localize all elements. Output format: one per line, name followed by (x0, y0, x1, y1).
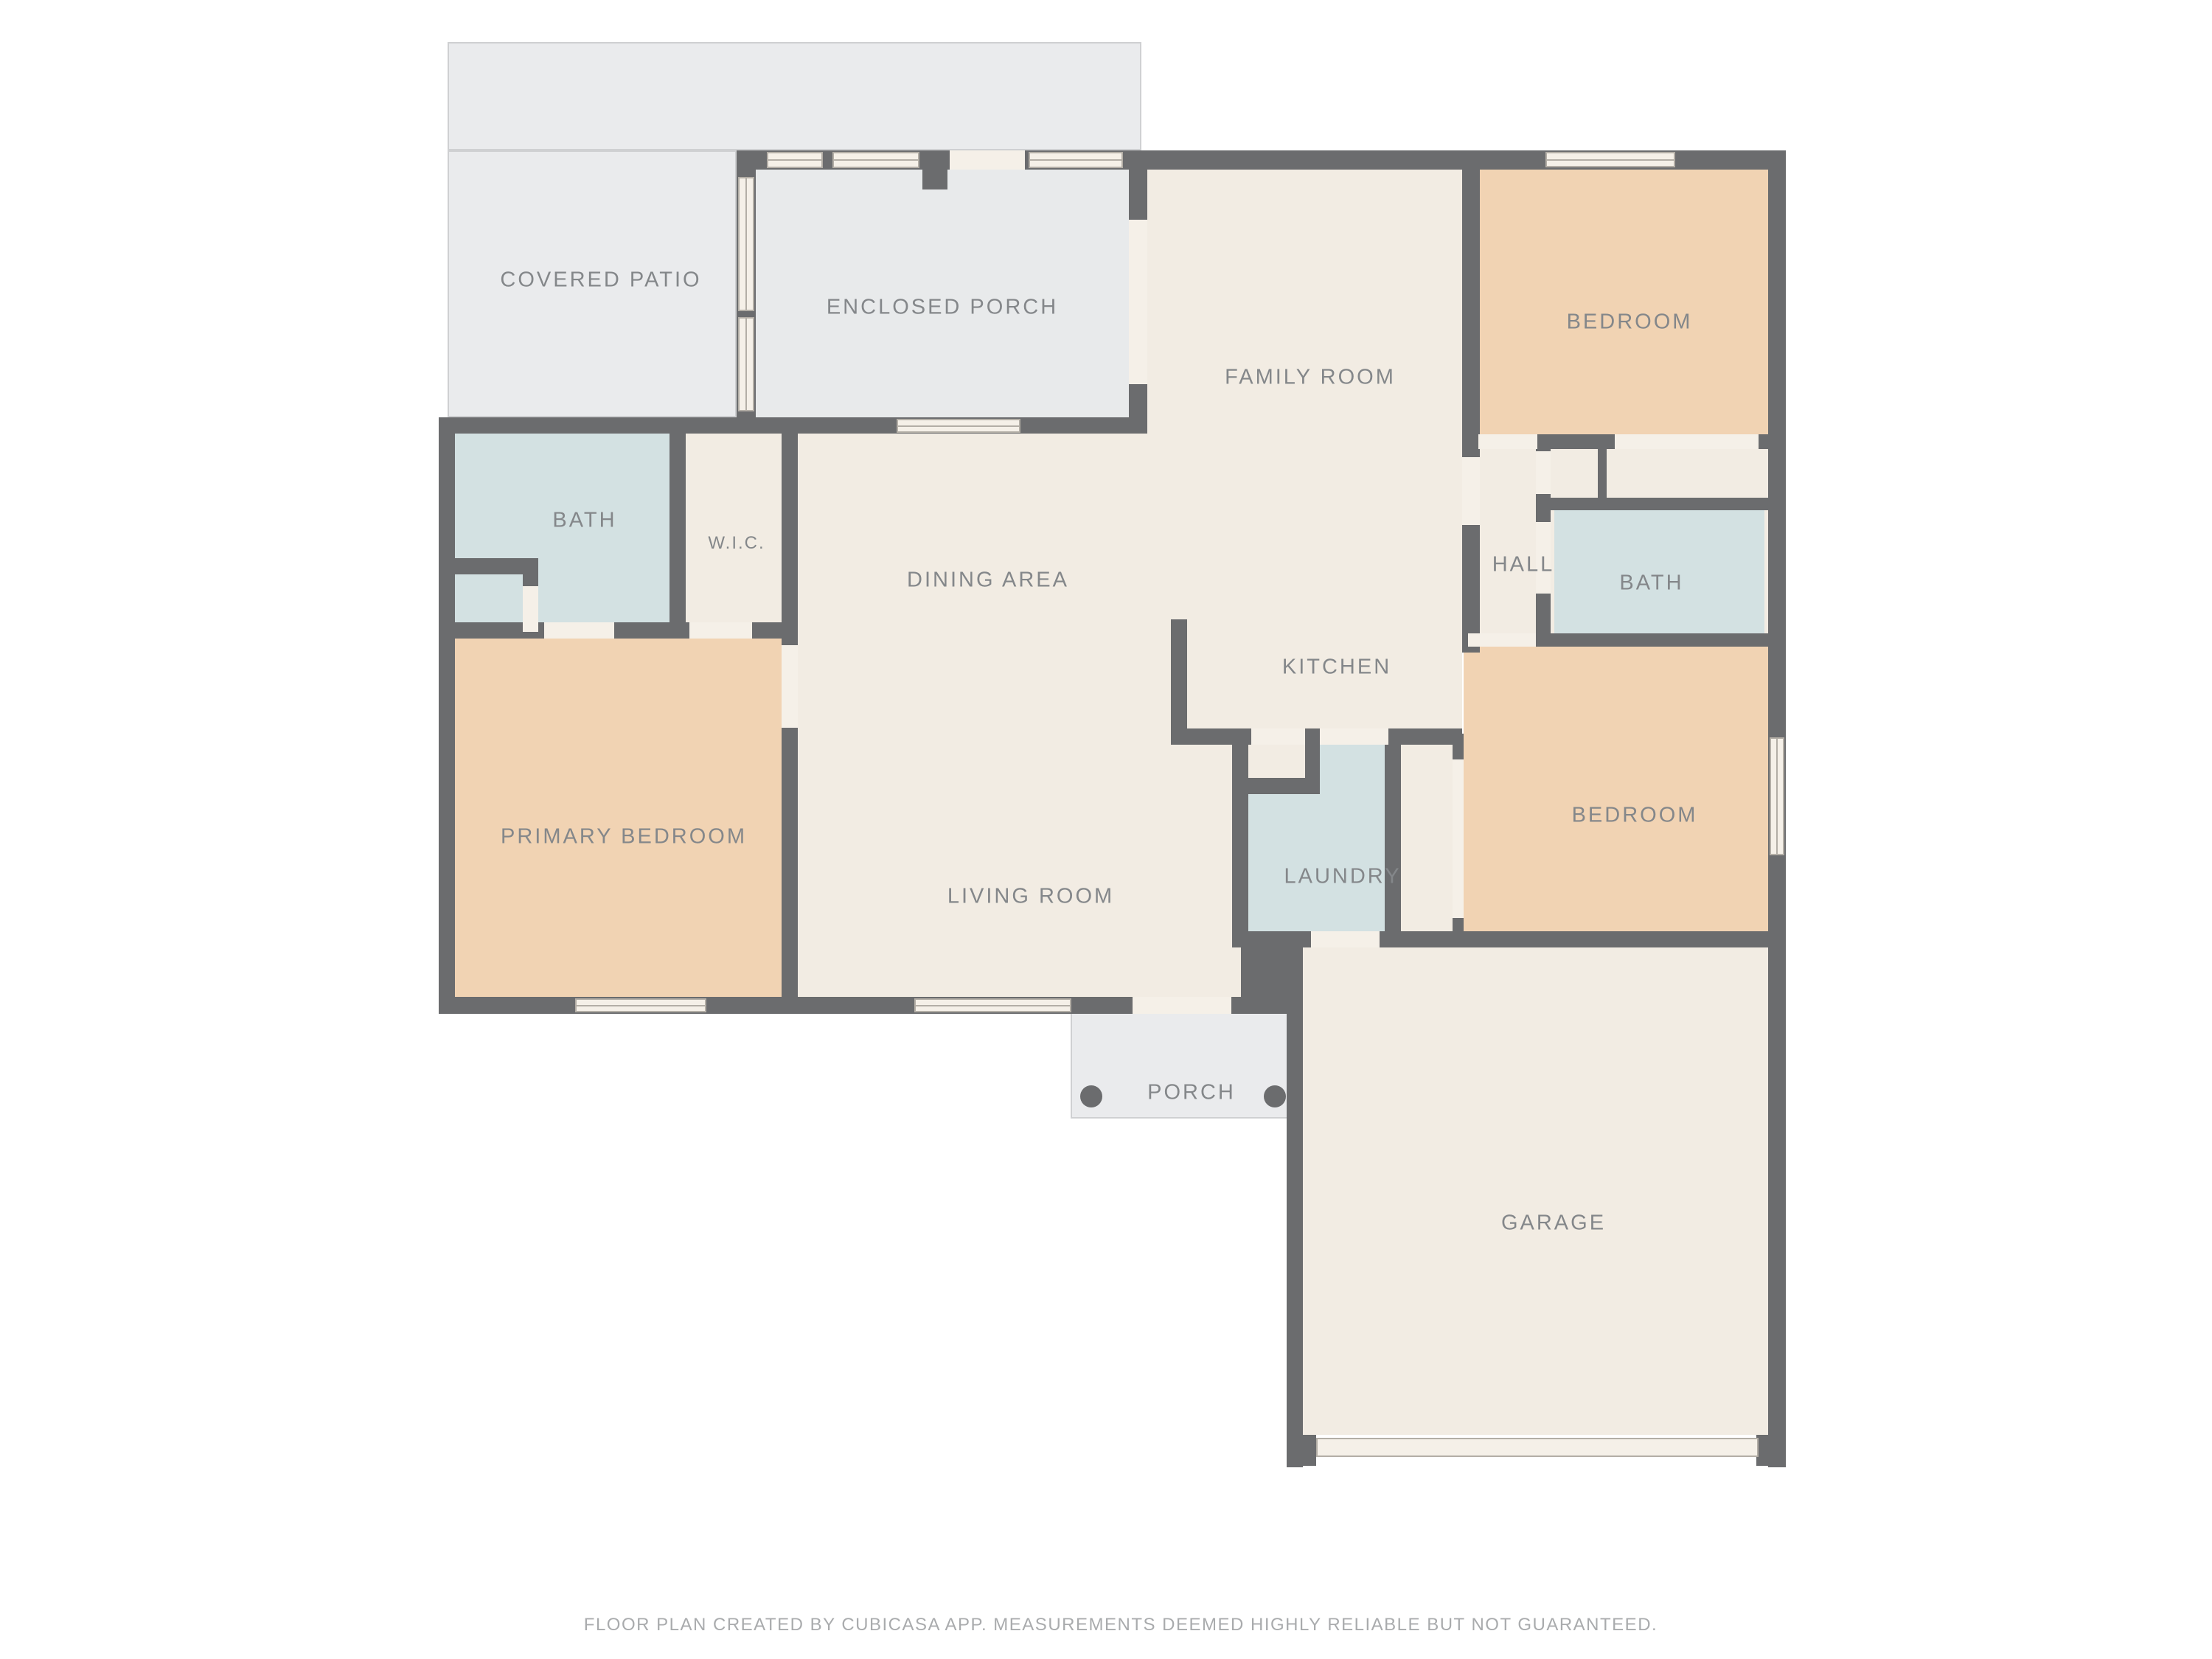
wall (669, 434, 686, 639)
front-door-opening (1133, 997, 1231, 1014)
wall (1232, 745, 1248, 947)
window (1545, 152, 1675, 167)
wall (1462, 150, 1480, 653)
door-opening (1478, 434, 1537, 449)
door-opening (1462, 457, 1480, 525)
window (767, 152, 823, 168)
window (738, 177, 754, 311)
window (914, 998, 1071, 1012)
wall (1129, 150, 1786, 170)
door-opening (1251, 728, 1305, 745)
window (897, 419, 1020, 433)
kitchen-nook (1248, 745, 1305, 778)
wall (1545, 498, 1770, 510)
door-opening (1311, 931, 1380, 947)
window (1770, 737, 1784, 855)
bedroom-closet-corridor (1401, 745, 1453, 931)
wall (1305, 728, 1320, 794)
room-label-kitchen: KITCHEN (1282, 655, 1391, 680)
room-label-bath-left: BATH (552, 509, 616, 533)
patio-upper-area (448, 42, 1141, 150)
wall (1756, 1435, 1786, 1466)
door-opening (950, 150, 1025, 170)
room-wic (686, 434, 782, 622)
room-family (1147, 170, 1462, 434)
room-label-laundry: LAUNDRY (1284, 865, 1401, 889)
room-bedroom-top (1480, 170, 1770, 443)
room-label-bedroom-top: BEDROOM (1567, 310, 1693, 335)
room-bedroom-bottom (1464, 645, 1770, 933)
garage-door (1316, 1438, 1759, 1457)
room-label-garage: GARAGE (1501, 1211, 1606, 1236)
floor-plan: COVERED PATIO ENCLOSED PORCH FAMILY ROOM… (0, 0, 2212, 1659)
room-label-hall: HALL (1492, 553, 1555, 577)
room-laundry-ext (1248, 794, 1315, 933)
window (575, 998, 706, 1012)
enclosed-porch-area (756, 170, 1129, 417)
wall (1385, 734, 1401, 947)
room-label-bedroom-bottom: BEDROOM (1572, 804, 1698, 828)
room-label-bath-right: BATH (1619, 571, 1683, 596)
porch-pillar (922, 170, 947, 189)
door-opening (523, 586, 538, 632)
room-label-dining-area: DINING AREA (907, 568, 1069, 593)
room-garage (1303, 946, 1772, 1435)
window (1029, 152, 1123, 168)
wall (1287, 946, 1303, 1467)
door-opening (782, 645, 798, 728)
room-label-wic: W.I.C. (708, 533, 765, 554)
room-laundry-main (1315, 743, 1385, 933)
door-opening (1536, 451, 1551, 494)
door-opening (1468, 633, 1536, 647)
footer-disclaimer: FLOOR PLAN CREATED BY CUBICASA APP. MEAS… (584, 1615, 1658, 1635)
window (832, 152, 919, 168)
room-label-living-room: LIVING ROOM (947, 885, 1114, 909)
room-label-porch: PORCH (1147, 1081, 1236, 1105)
room-primary-bedroom (455, 639, 782, 997)
door-opening (544, 622, 614, 639)
wall (439, 997, 1251, 1014)
door-opening (1453, 759, 1464, 918)
room-label-primary-bedroom: PRIMARY BEDROOM (501, 825, 747, 849)
wall (1171, 619, 1187, 745)
porch-column (1080, 1085, 1102, 1107)
window (738, 317, 754, 411)
wall (1287, 1435, 1316, 1466)
room-label-covered-patio: COVERED PATIO (500, 268, 701, 293)
room-label-family-room: FAMILY ROOM (1225, 366, 1396, 390)
porch-column (1264, 1085, 1286, 1107)
room-label-enclosed-porch: ENCLOSED PORCH (827, 296, 1058, 320)
wall (439, 417, 455, 1014)
door-opening (1129, 220, 1147, 384)
door-opening (689, 622, 752, 639)
door-opening (1320, 728, 1388, 745)
wall (1232, 778, 1315, 794)
door-opening (1615, 434, 1759, 449)
